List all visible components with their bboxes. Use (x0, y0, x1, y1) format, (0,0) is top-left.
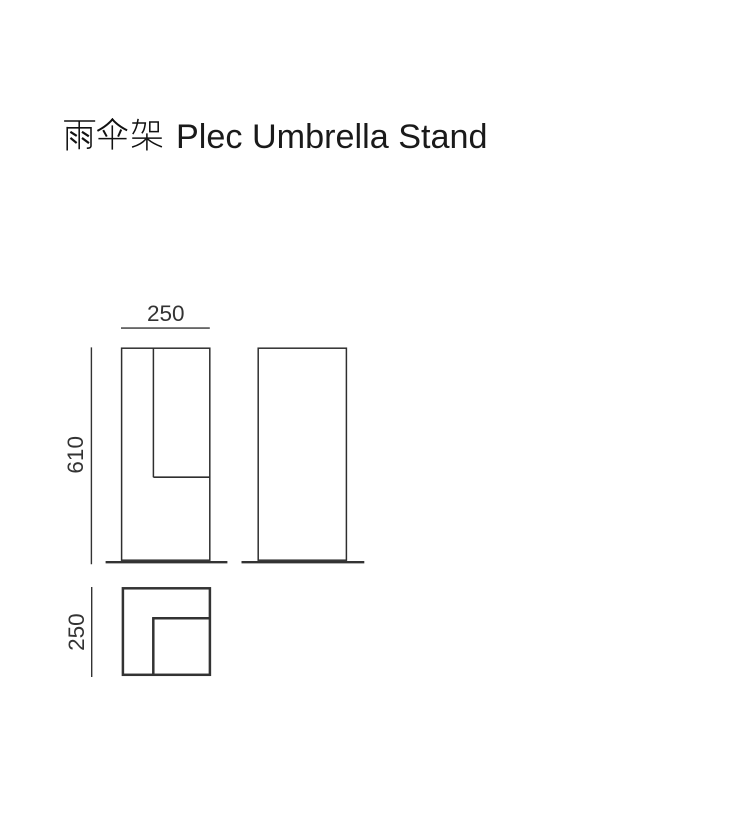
svg-text:250: 250 (64, 613, 89, 651)
svg-text:610: 610 (63, 436, 88, 474)
svg-text:Plec Umbrella Stand: Plec Umbrella Stand (176, 118, 488, 156)
svg-text:250: 250 (147, 301, 185, 326)
